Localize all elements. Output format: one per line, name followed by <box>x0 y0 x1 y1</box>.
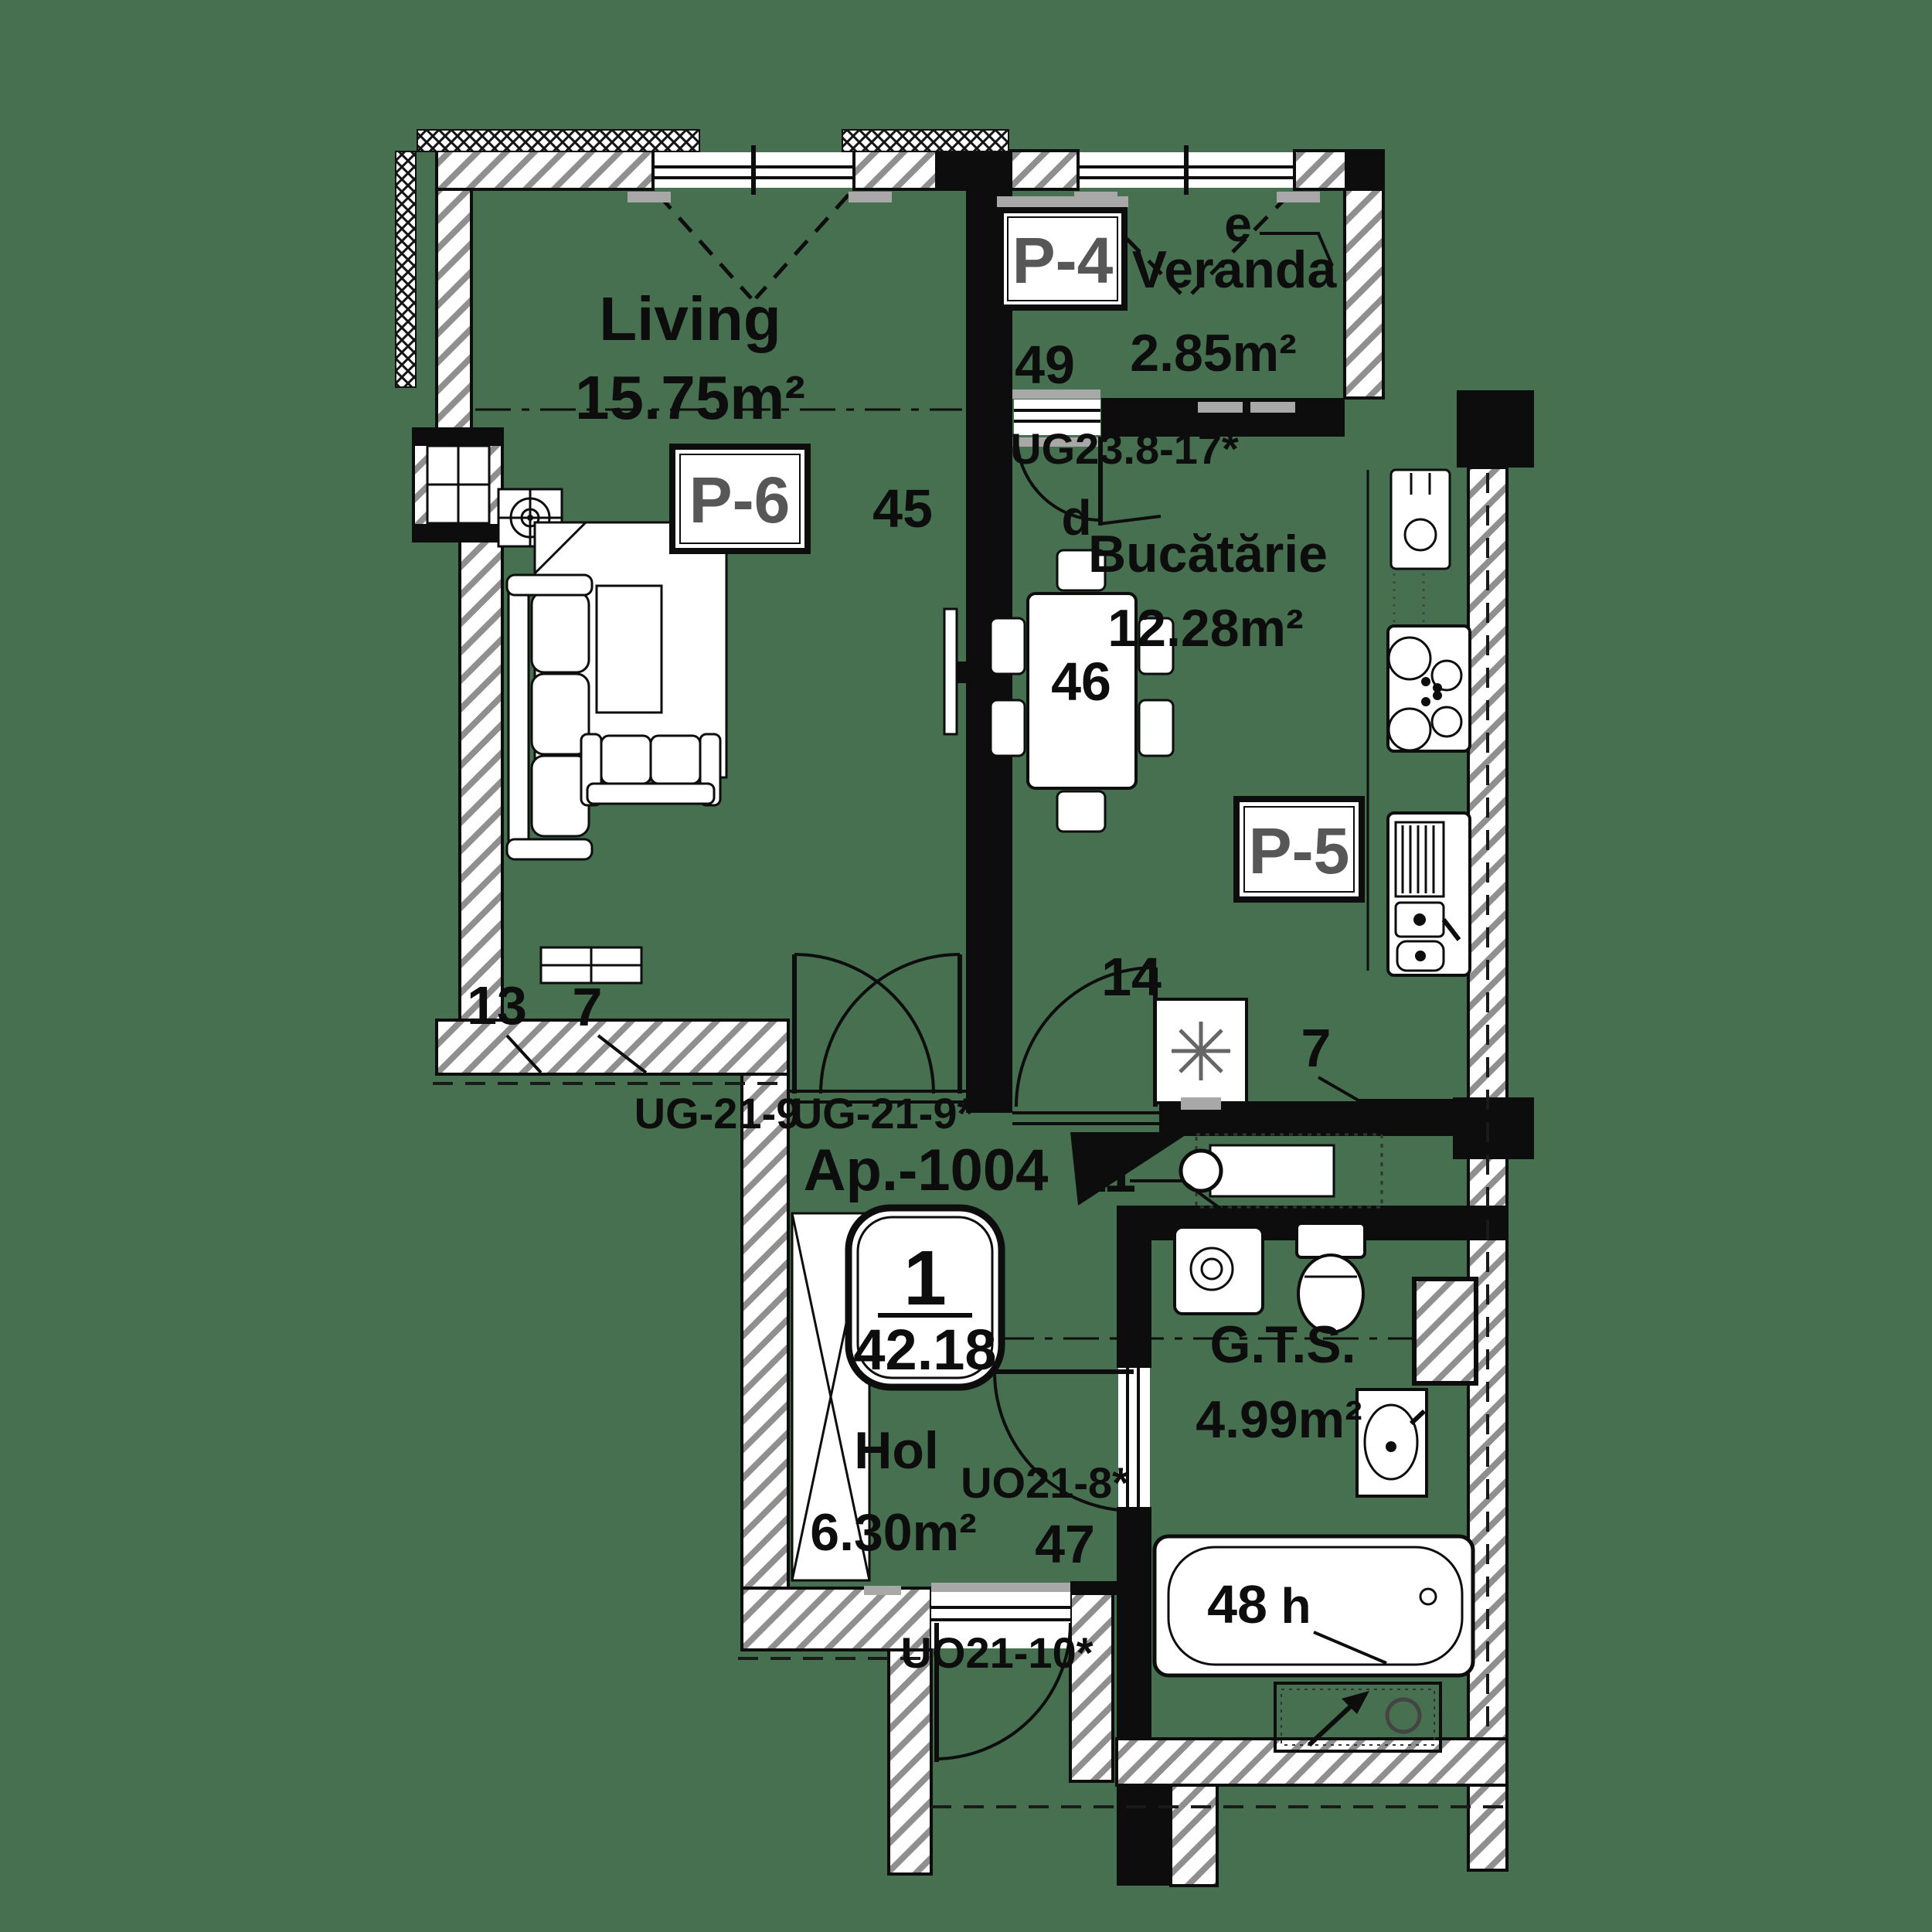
gts-name: G.T.S. <box>1210 1315 1356 1374</box>
zone-48: 48 <box>1207 1574 1267 1634</box>
cooktop <box>1388 626 1470 751</box>
duct-shaft <box>1414 1279 1476 1383</box>
door-label-entry: UO21-10* <box>900 1628 1093 1677</box>
detail-14: 14 <box>1101 947 1162 1007</box>
bathtub <box>1155 1536 1473 1675</box>
apartment-badge: 1 42.18 <box>849 1208 1002 1387</box>
door-living-hall-double <box>788 954 966 1102</box>
wall-gts-left-upper <box>1117 1240 1151 1368</box>
hall-name: Hol <box>854 1421 939 1480</box>
gts-area: 4.99m² <box>1196 1390 1362 1449</box>
wall-left-upper <box>437 189 471 429</box>
column-right-middle <box>1453 1097 1534 1159</box>
door-label-living-right: UG-21-9* <box>791 1089 975 1138</box>
wall-entry-nook <box>1171 1785 1217 1886</box>
tag-p4-label: P-4 <box>1012 224 1114 297</box>
door-label-gts: UO21-8* <box>961 1458 1129 1507</box>
wall-top-living-left <box>437 151 653 189</box>
tag-p6-label: P-6 <box>689 464 791 536</box>
wall-top-junction <box>935 151 1012 189</box>
tag-p4: P-4 <box>997 196 1128 308</box>
pilaster-cap-bottom <box>413 524 502 541</box>
kitchen-area: 12.28m² <box>1107 599 1303 658</box>
fridge <box>1391 470 1450 569</box>
wall-vestibule-right <box>1070 1592 1113 1781</box>
badge-rooms: 1 <box>903 1235 947 1321</box>
tag-p6: P-6 <box>672 447 808 551</box>
living-name: Living <box>599 284 781 353</box>
wall-gts-left-lower <box>1117 1507 1151 1739</box>
axis-e: e <box>1224 196 1252 252</box>
wall-hall-left <box>742 1074 788 1650</box>
wall-gts-bottom <box>1117 1739 1507 1785</box>
badge-area: 42.18 <box>853 1318 996 1382</box>
zone-45: 45 <box>872 478 933 539</box>
washing-machine <box>1175 1227 1263 1314</box>
detail-7-living: 7 <box>573 977 603 1037</box>
detail-13: 13 <box>467 975 527 1036</box>
veranda-area: 2.85m² <box>1130 324 1296 383</box>
door-label-veranda-kitchen: UG23.8-17* <box>1010 424 1239 473</box>
axis-d: d <box>1061 490 1091 546</box>
column-veranda-corner <box>1457 390 1534 468</box>
insulation-left <box>396 151 416 387</box>
bathroom-sink <box>1357 1389 1427 1496</box>
apartment-unit: 11 <box>1074 1139 1136 1205</box>
pilaster-window <box>427 446 489 523</box>
opening-living-balcony-door <box>628 145 892 298</box>
insulation-top-middle <box>842 130 1009 151</box>
axis-h: h <box>1281 1578 1311 1634</box>
apartment-label: Ap.-1004 <box>804 1138 1049 1203</box>
zone-49: 49 <box>1015 335 1075 395</box>
insulation-top-left <box>417 130 699 151</box>
vestibule-stub <box>1070 1581 1151 1595</box>
zone-47: 47 <box>1035 1514 1095 1574</box>
wall-veranda-right <box>1345 189 1383 398</box>
door-label-living-left: UG-21-9 <box>634 1089 801 1138</box>
tag-p5: P-5 <box>1236 799 1362 900</box>
wall-veranda-corner-cap <box>1345 151 1383 189</box>
detail-7-kitchen: 7 <box>1301 1018 1332 1078</box>
living-area: 15.75m² <box>575 363 805 432</box>
zone-46: 46 <box>1051 651 1111 712</box>
floor-plan-canvas: P-6 P-4 P-5 1 42.18 Living 15.75m² Veran… <box>0 0 1932 1932</box>
tag-p5-label: P-5 <box>1249 815 1350 887</box>
entry-nook-stub <box>1117 1785 1171 1886</box>
loveseat <box>581 734 720 805</box>
hall-area: 6.30m² <box>810 1503 976 1562</box>
sofa <box>507 575 592 859</box>
wall-vestibule-left <box>889 1650 931 1874</box>
living-room-furniture <box>498 489 966 983</box>
tv <box>944 609 966 734</box>
kitchen-name: Bucătărie <box>1088 525 1328 583</box>
boiler <box>1155 999 1247 1110</box>
pilaster-cap-top <box>413 429 502 446</box>
coffee-table <box>597 586 662 713</box>
kitchen-sink-unit <box>1388 813 1470 975</box>
